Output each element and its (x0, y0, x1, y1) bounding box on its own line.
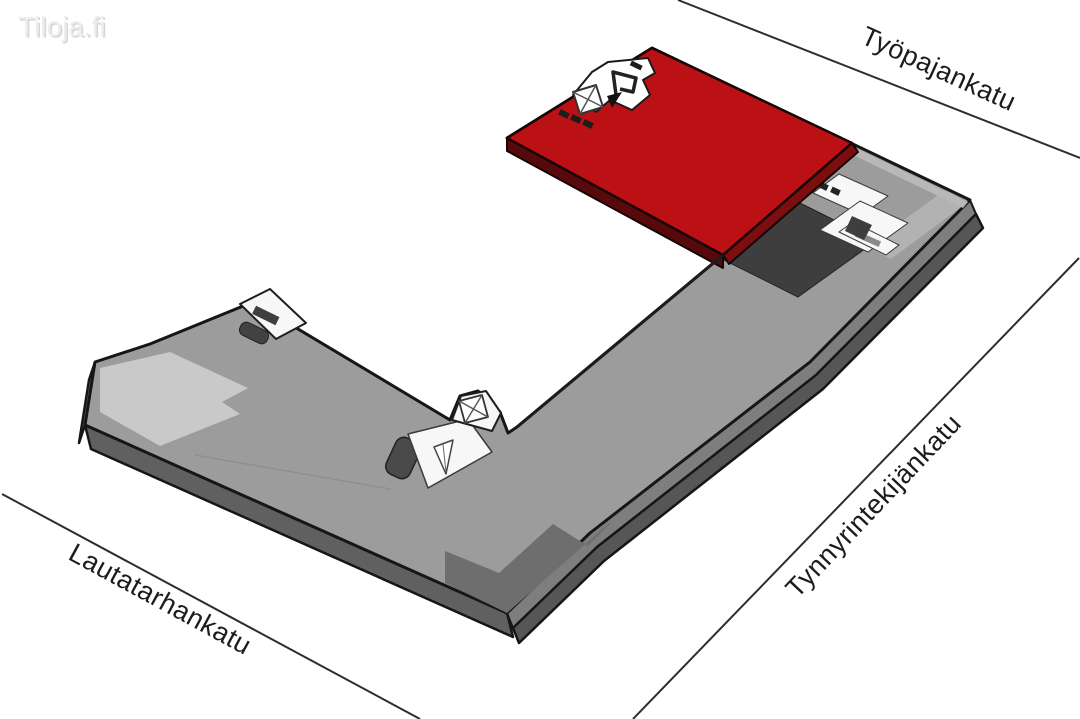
site-logo: Tiloja.fi Tiloja.fi (18, 11, 107, 44)
floor-plan-page: Tiloja.fi Tiloja.fi Työpajankatu Tynnyri… (0, 0, 1080, 719)
elevator-icon (459, 395, 488, 423)
street-label-tynnyrintekijankatu: Tynnyrintekijänkatu (780, 408, 967, 603)
floor-plan-canvas: Tiloja.fi Tiloja.fi Työpajankatu Tynnyri… (0, 0, 1080, 719)
site-logo-text: Tiloja.fi (18, 11, 106, 42)
street-label-lautatarhankatu: Lautatarhankatu (64, 538, 256, 661)
